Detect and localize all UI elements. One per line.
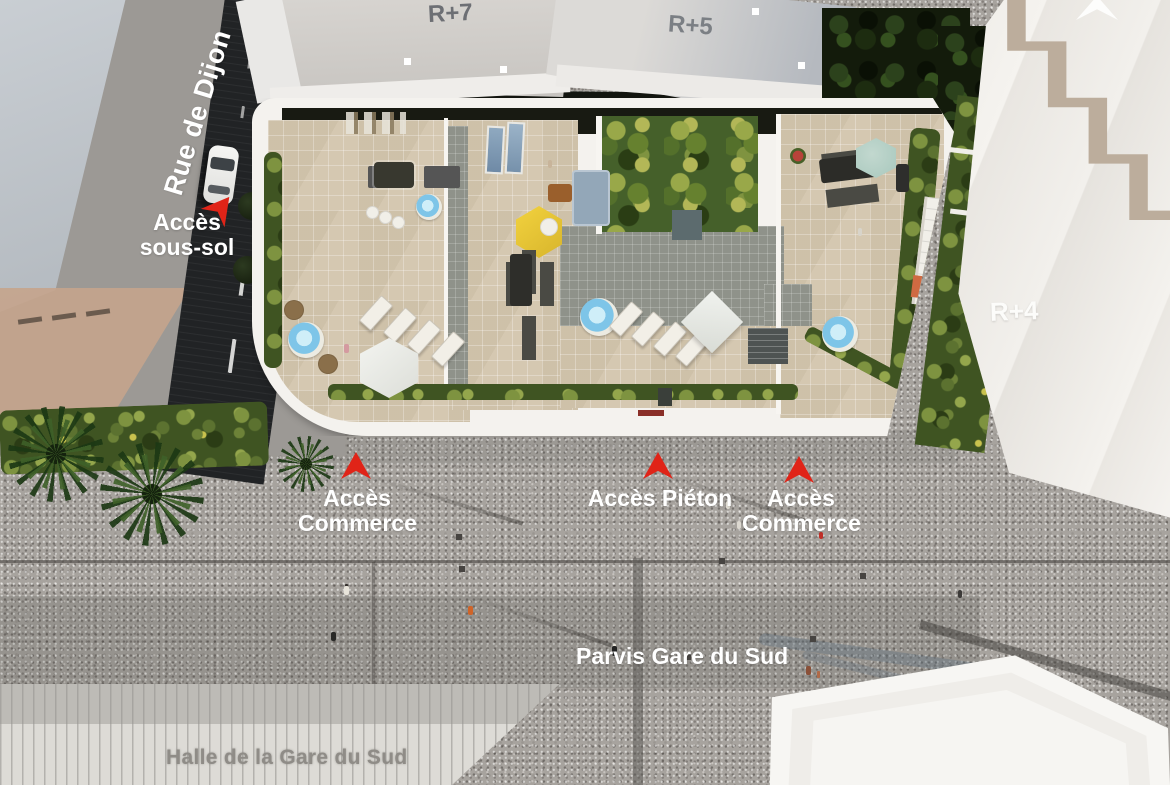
acces-text: Accès (742, 486, 860, 511)
chair-round-3 (392, 216, 405, 229)
bollard-1 (456, 534, 462, 540)
coffee-table-brown (548, 184, 572, 202)
r5-roof-dot-2 (798, 62, 805, 69)
acces-pieton-text: Accès Piéton (582, 486, 738, 511)
pedestrian-1 (344, 586, 349, 595)
palm-tree-1 (8, 406, 104, 502)
flower-pot-red (790, 148, 806, 164)
barbecue-right (896, 164, 909, 192)
deck-chairs-top (346, 112, 406, 134)
bollard-2 (459, 566, 465, 572)
building-label-r4: R+4 (989, 295, 1038, 328)
skylight-1 (485, 126, 505, 175)
building-label-halle: Halle de la Gare du Sud (166, 746, 407, 770)
inner-wall-3 (776, 114, 781, 414)
pedestrian-8 (958, 590, 962, 598)
wicker-chair-2 (318, 354, 338, 374)
chair-round-1 (366, 206, 379, 219)
palm-tree-2 (100, 442, 204, 546)
building-label-r5: R+5 (667, 10, 714, 41)
parvis-text: Parvis Gare du Sud (576, 644, 788, 669)
paving-joint-horizontal (0, 560, 1170, 563)
commerce-text: Commerce (742, 511, 860, 536)
bollard-3 (719, 558, 725, 564)
pedestrian-7 (806, 666, 811, 675)
chair-round-2 (379, 211, 392, 224)
spa-pool-small (416, 194, 442, 220)
roof-person-3 (548, 160, 552, 168)
patio-table-left (374, 162, 414, 188)
spa-pool-left (288, 322, 324, 358)
paving-joint-vertical-1 (372, 562, 375, 690)
site-plan-aerial-view: Rue de Dijon Accès sous-sol Accès Commer… (0, 0, 1170, 785)
access-commerce-right-label: Accès Commerce (742, 486, 860, 536)
car-rear-window (207, 184, 230, 195)
r7-roof-dot-1 (404, 58, 411, 65)
skylight-2 (505, 122, 526, 175)
entrance-red-mat (638, 410, 664, 416)
bollard-6 (860, 573, 866, 579)
roof-person-1 (858, 228, 862, 236)
roof-gray-step (764, 284, 812, 326)
stair-block-bottom (748, 328, 788, 364)
pedestrian-5 (737, 521, 741, 529)
sofa-center (572, 170, 610, 226)
spa-pool-right (822, 316, 858, 352)
round-white-item (540, 218, 558, 236)
pedestrian-2 (331, 632, 336, 641)
planting-left-edge (264, 152, 282, 368)
commerce-text: Commerce (298, 511, 416, 536)
main-building-outline (252, 98, 954, 436)
pedestrian-3 (468, 606, 473, 615)
access-sous-sol-label: Accès sous-sol (126, 210, 248, 260)
palm-tree-3 (278, 436, 334, 492)
acces-text: Accès (126, 210, 248, 235)
acces-text: Accès (298, 486, 416, 511)
roof-person-2 (344, 344, 349, 353)
r7-roof-dot-2 (500, 66, 507, 73)
bollard-5 (810, 636, 816, 642)
car-windshield (210, 156, 235, 171)
dining-table-center (510, 254, 532, 306)
halle-roof-top-band (0, 684, 565, 724)
building-label-r7: R+7 (427, 0, 473, 29)
sous-sol-text: sous-sol (126, 235, 248, 260)
access-pieton-label: Accès Piéton (582, 486, 738, 511)
entrance-door (658, 388, 672, 406)
garden-gray-pad (672, 210, 702, 240)
wicker-chair-1 (284, 300, 304, 320)
r5-roof-dot-1 (752, 8, 759, 15)
access-commerce-left-label: Accès Commerce (298, 486, 416, 536)
paving-joint-vertical-2 (633, 558, 643, 785)
plaza-label-parvis: Parvis Gare du Sud (576, 644, 788, 669)
